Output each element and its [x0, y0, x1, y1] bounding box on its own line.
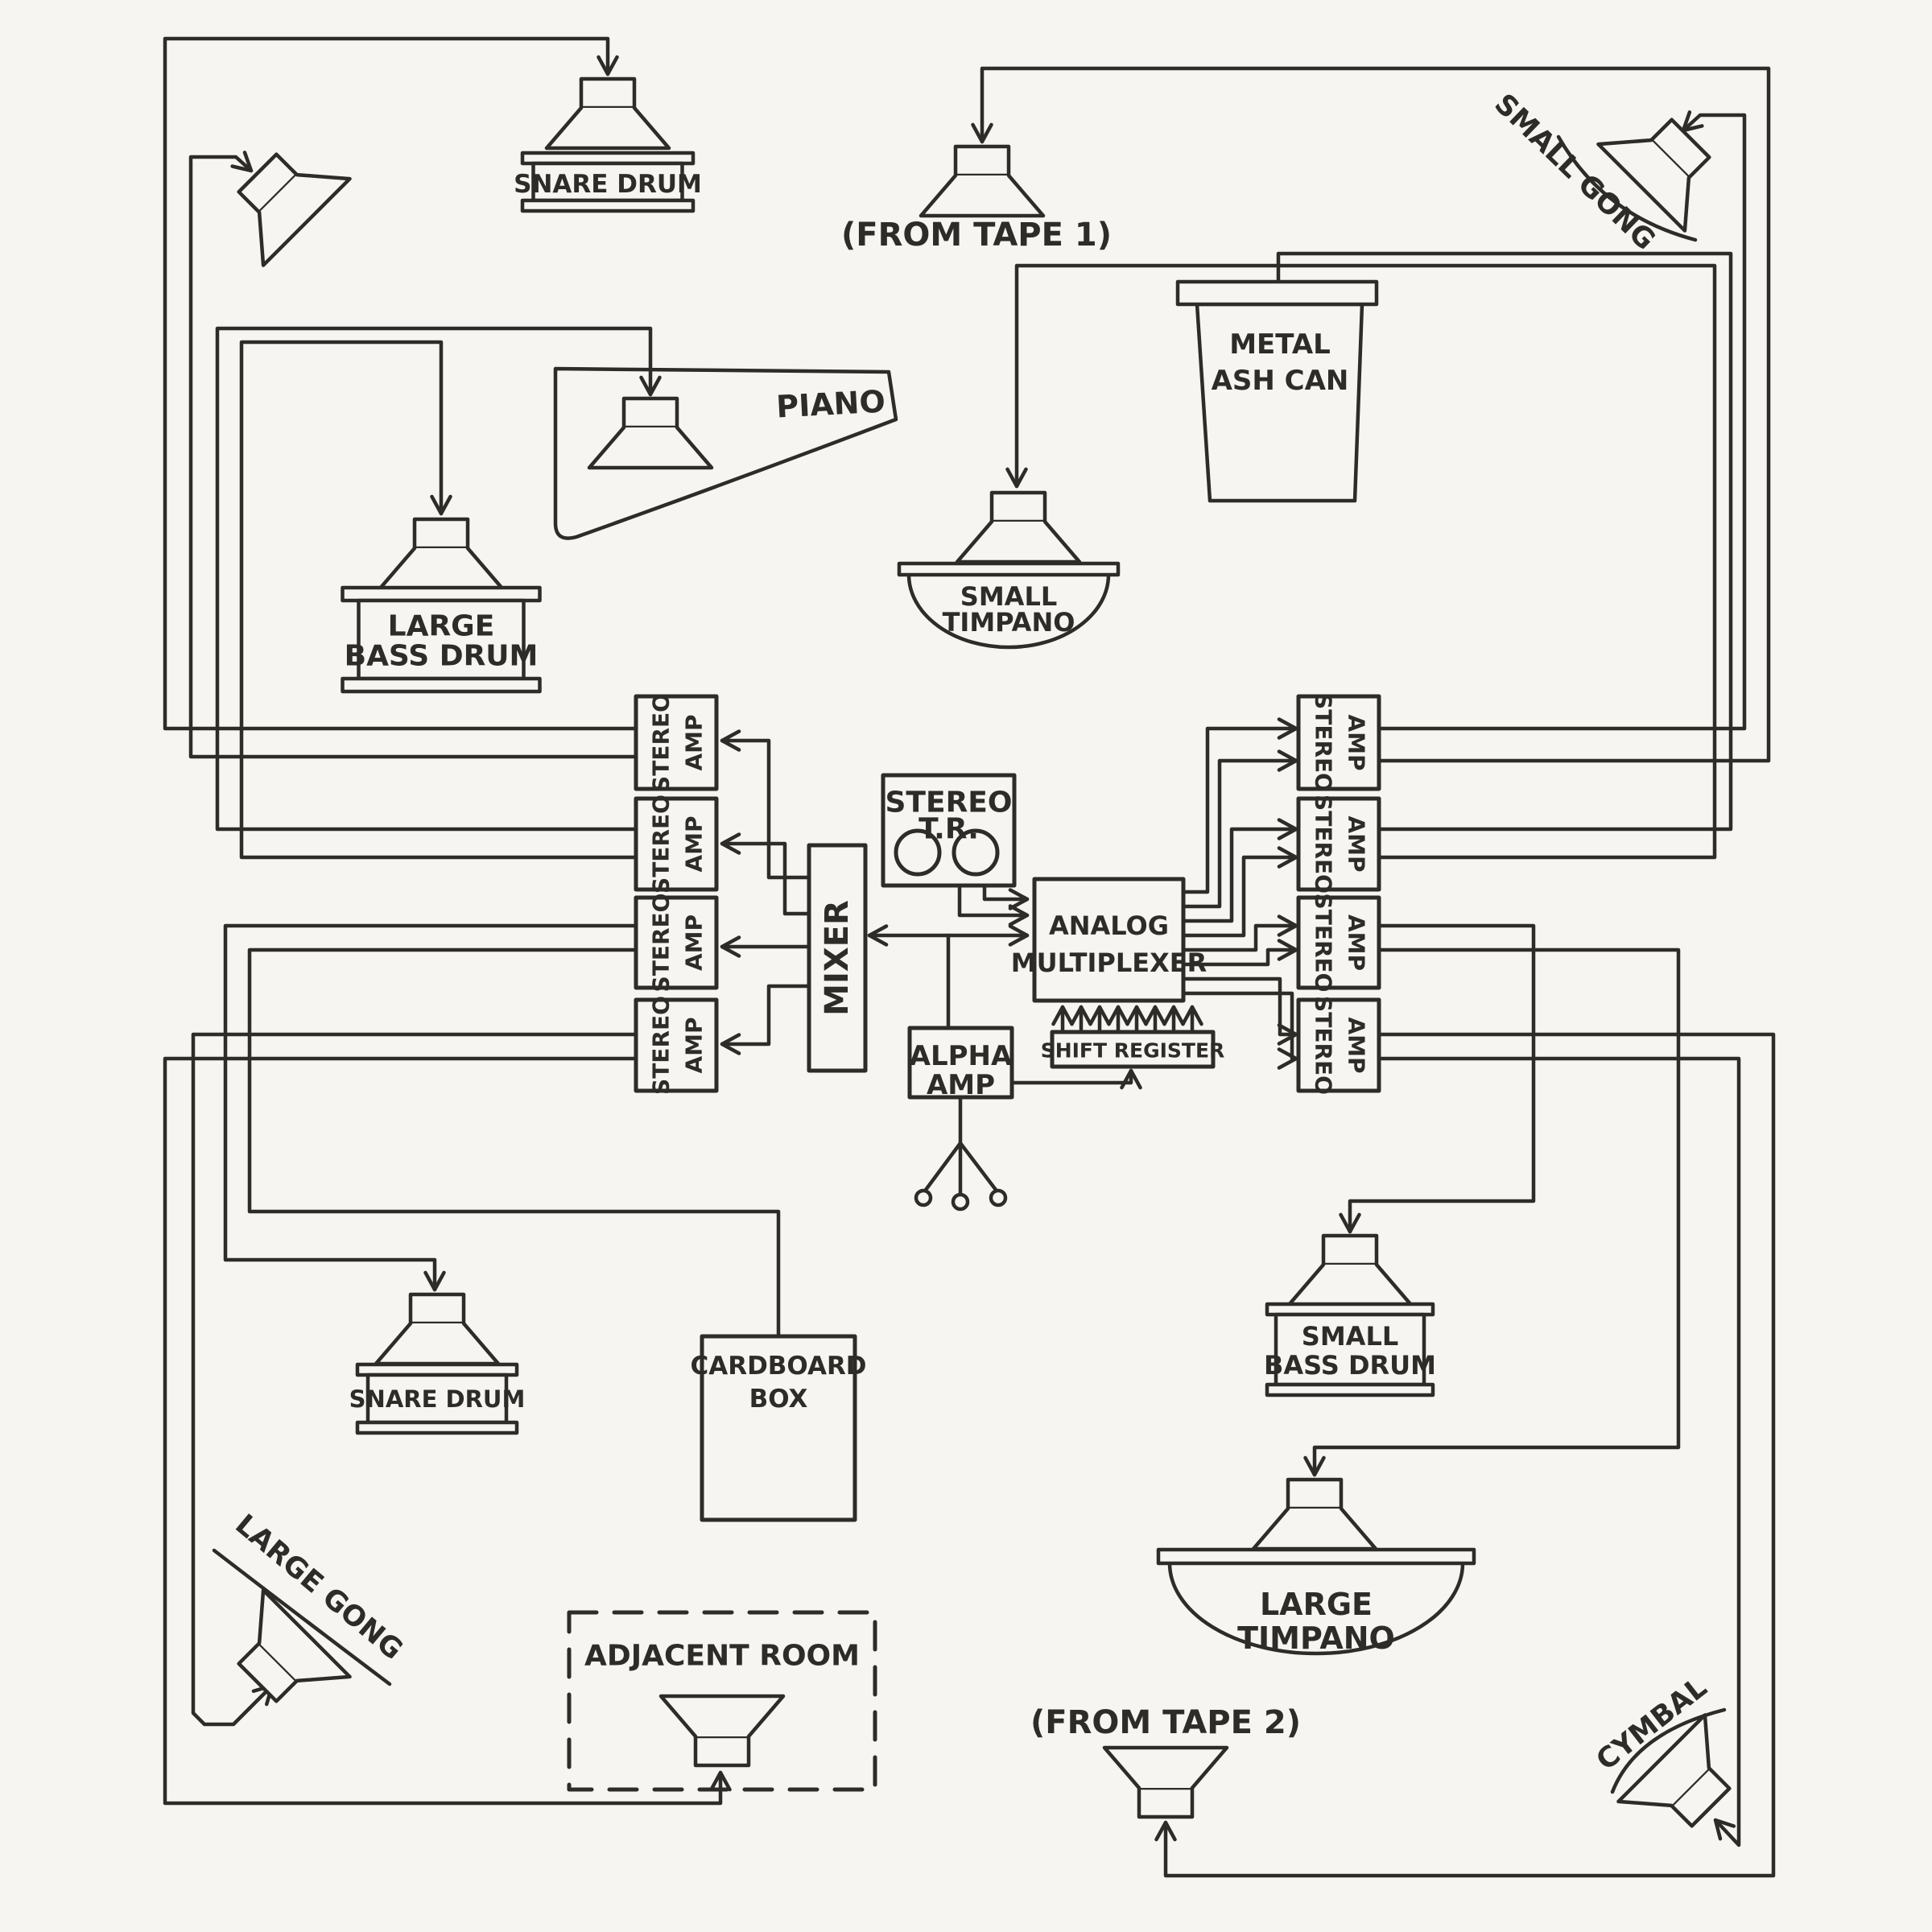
stereo-amp-right-4-label: AMP [1344, 1017, 1370, 1073]
analog-multiplexer-label: ANALOG [1049, 910, 1169, 941]
stereo-amp-left-2-label: STEREO [648, 795, 675, 894]
room-corner-speaker [214, 130, 349, 265]
speaker-driver [992, 493, 1045, 522]
large-bass-drum-speaker [380, 519, 502, 588]
from-tape-1-label: (FROM TAPE 1) [841, 217, 1112, 254]
wire-small-gong [1378, 115, 1744, 729]
stereo-amp-left-3-label: AMP [681, 914, 708, 971]
wire-mux-ramp2b [1183, 857, 1296, 935]
speaker-driver [411, 1294, 464, 1323]
large-bass-drum-label: BASS DRUM [345, 640, 539, 673]
stereo-amp-left-3-label: STEREO [648, 894, 675, 993]
speaker-driver [624, 398, 677, 427]
shift-register-label: SHIFT REGISTER [1041, 1039, 1225, 1063]
drum-top-hoop [343, 588, 540, 601]
speaker-horn [547, 108, 669, 148]
electrode [916, 1191, 931, 1205]
stereo-amp-right-3-label: STEREO [1311, 894, 1337, 993]
speaker-horn [1289, 1265, 1411, 1305]
wire-mux-ramp3a [1183, 926, 1296, 950]
large-bass-drum-label: LARGE [388, 610, 495, 643]
drum-bottom-hoop [522, 200, 693, 211]
wire-mux-ramp1b [1183, 761, 1296, 906]
stereo-amp-right-1-label: STEREO [1311, 693, 1337, 792]
wire-alpha-shift [1012, 1071, 1131, 1083]
alpha-amp-label: AMP [927, 1069, 995, 1101]
speaker-horn [589, 427, 712, 468]
timpano-rim [899, 563, 1118, 575]
snare-bottom-speaker [376, 1294, 498, 1364]
stereo-amp-right-3-label: AMP [1344, 914, 1370, 971]
speaker-horn [1104, 1748, 1227, 1788]
small-bass-drum-label: SMALL [1302, 1321, 1398, 1352]
wire-snare-bottom [225, 926, 636, 1290]
from-tape-2-label: (FROM TAPE 2) [1030, 1704, 1301, 1741]
drum-bottom-hoop [357, 1422, 517, 1433]
stereo-amp-right-2-label: AMP [1344, 815, 1370, 872]
speaker-driver [1288, 1480, 1341, 1509]
electrode [991, 1191, 1005, 1205]
from-tape-1-speaker [921, 147, 1043, 216]
diagram-canvas: SNARE DRUMLARGEBASS DRUMSNARE DRUMSMALLB… [0, 0, 1932, 1932]
speaker-horn [921, 175, 1043, 216]
small-timpano-label: TIMPANO [943, 607, 1075, 638]
piano-label: PIANO [775, 383, 886, 424]
stereo-tape-recorder-label: T.R. [919, 813, 979, 846]
large-timpano-speaker [1253, 1480, 1376, 1549]
small-bass-drum-label: BASS DRUM [1264, 1350, 1436, 1381]
drum-bottom-hoop [343, 679, 540, 691]
speaker-horn [376, 1323, 498, 1364]
piano-speaker [589, 398, 712, 468]
ash-can-label: ASH CAN [1212, 365, 1349, 397]
stereo-amp-left-4-label: STEREO [648, 996, 675, 1095]
wire-mixer-amp1 [722, 741, 809, 877]
adjacent-room-label: ADJACENT ROOM [584, 1640, 860, 1673]
stereo-amp-left-4-label: AMP [681, 1017, 708, 1073]
speaker-horn [661, 1696, 783, 1736]
speaker-horn [235, 151, 350, 266]
large-timpano-label: LARGE [1260, 1587, 1373, 1622]
electrode [953, 1195, 968, 1209]
ash-can-lid [1178, 282, 1377, 304]
speaker-driver [1139, 1788, 1192, 1817]
ash-can-label: METAL [1229, 328, 1331, 361]
speaker-driver [581, 79, 634, 108]
stereo-amp-right-4-label: STEREO [1311, 996, 1337, 1095]
wire-cymbal [1378, 1059, 1739, 1845]
stereo-amp-right-1-label: AMP [1344, 714, 1370, 770]
speaker-driver [1323, 1236, 1377, 1265]
snare-drum-top-label: SNARE DRUM [514, 170, 702, 199]
analog-multiplexer-label: MULTIPLEXER [1011, 947, 1207, 978]
from-tape-2-speaker [1104, 1748, 1227, 1817]
adjacent-room-speaker [661, 1696, 783, 1765]
speaker-driver [415, 519, 468, 548]
speaker-driver [696, 1736, 749, 1765]
stereo-amp-right-2-label: STEREO [1311, 795, 1337, 894]
alpha-amp-label: ALPHA [910, 1040, 1013, 1072]
speaker-percussion-system-diagram: SNARE DRUMLARGEBASS DRUMSNARE DRUMSMALLB… [0, 0, 1932, 1932]
snare-top-speaker [547, 79, 669, 148]
speaker-driver [956, 147, 1009, 175]
cardboard-box-label: BOX [749, 1385, 808, 1414]
wire-electrode-a [926, 1143, 960, 1190]
speaker-horn [957, 522, 1080, 562]
large-gong-label: LARGE GONG [229, 1509, 408, 1666]
mixer-label: MIXER [819, 900, 856, 1016]
stereo-amp-left-1-label: AMP [681, 714, 708, 770]
stereo-amp-left-1-label: STEREO [648, 693, 675, 792]
stereo-amp-left-2-label: AMP [681, 815, 708, 872]
drum-bottom-hoop [1267, 1385, 1433, 1395]
snare-drum-bottom-label: SNARE DRUM [349, 1385, 526, 1413]
speaker-horn [380, 548, 502, 588]
large-timpano-label: TIMPANO [1237, 1620, 1395, 1656]
cardboard-box-label: CARDBOARD [690, 1352, 866, 1381]
wire-electrode-c [960, 1143, 996, 1190]
small-timpano-speaker [957, 493, 1080, 562]
speaker-horn [1253, 1509, 1376, 1549]
timpano-rim [1158, 1550, 1474, 1563]
small-bass-drum-speaker [1289, 1236, 1411, 1305]
